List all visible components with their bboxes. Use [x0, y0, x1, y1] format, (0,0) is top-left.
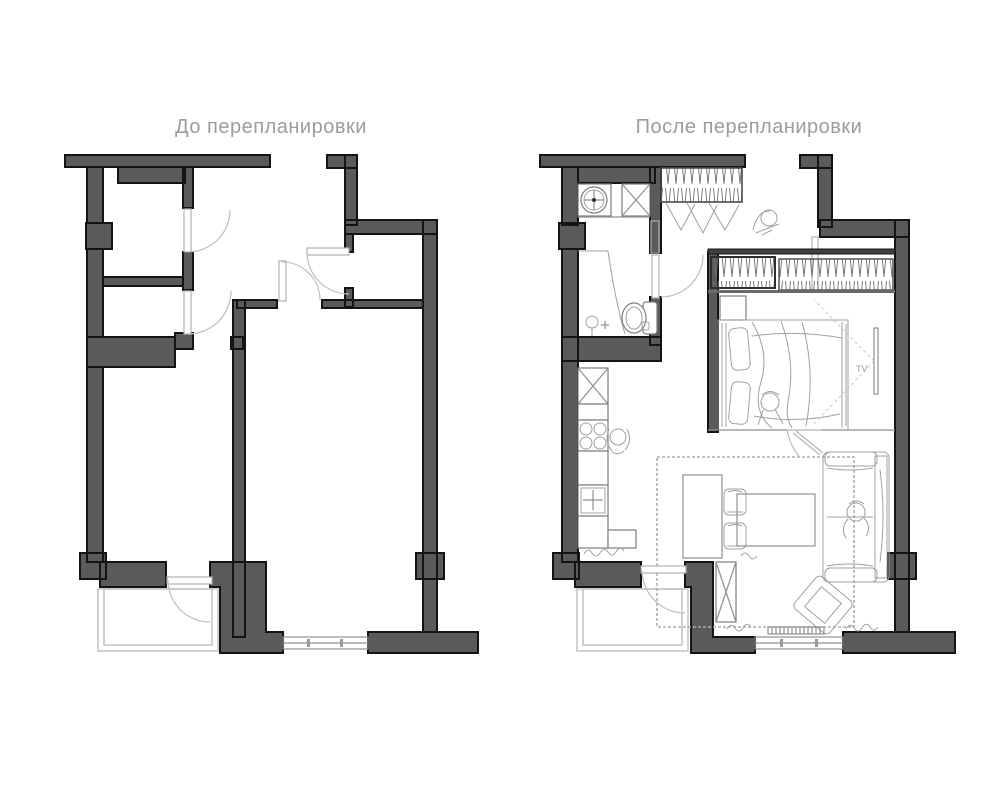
- floor-plans-drawing: TV: [0, 0, 988, 791]
- person-sketch-bed: [758, 392, 783, 426]
- door-small-room: [307, 248, 349, 294]
- person-sketch-sofa: [843, 501, 868, 538]
- toilet-icon: [622, 302, 657, 334]
- bathroom-cabinet-icon: [622, 184, 650, 216]
- shower-head-icon: [586, 316, 609, 336]
- radiator: [768, 627, 824, 634]
- bar-stool-icon: [724, 523, 746, 549]
- bedroom-wardrobes: [708, 249, 895, 293]
- washing-machine-icon: [578, 184, 611, 216]
- person-sketch-cook: [607, 429, 629, 454]
- kitchen-run: [578, 368, 636, 556]
- bedroom-partition: [708, 430, 895, 457]
- door-room1: [184, 209, 230, 252]
- bed: [718, 320, 848, 430]
- plan-after: TV: [540, 155, 955, 653]
- tv-label: TV: [856, 364, 868, 374]
- balcony-outline: [98, 589, 218, 651]
- window-bottom: [755, 637, 843, 649]
- fridge-icon: [578, 368, 608, 404]
- coffee-table: [737, 494, 815, 546]
- person-sketch-entry: [753, 210, 779, 235]
- door-room2: [184, 291, 231, 334]
- rug: [657, 457, 854, 627]
- counter-section: [578, 404, 608, 420]
- floor-plan-comparison-page: До перепланировки После перепланировки: [0, 0, 988, 791]
- sink-icon: [578, 485, 608, 516]
- walls: [65, 155, 478, 653]
- counter-section: [578, 451, 608, 485]
- stove-icon: [578, 420, 608, 451]
- shelving-unit-icon: [716, 562, 736, 622]
- sofa: [823, 452, 889, 582]
- plan-before: [65, 155, 478, 653]
- corner-counter: [578, 516, 636, 548]
- door-hall-living: [279, 261, 320, 301]
- shower-screen: [578, 251, 625, 334]
- door-balcony: [167, 577, 212, 622]
- balcony-outline: [577, 589, 688, 651]
- hall-wardrobe: [661, 168, 742, 233]
- window-bottom: [283, 637, 368, 649]
- bar-stool-icon: [724, 489, 746, 515]
- plant-squiggle: [584, 548, 624, 556]
- door-bathroom: [652, 255, 703, 298]
- nightstand: [720, 296, 746, 320]
